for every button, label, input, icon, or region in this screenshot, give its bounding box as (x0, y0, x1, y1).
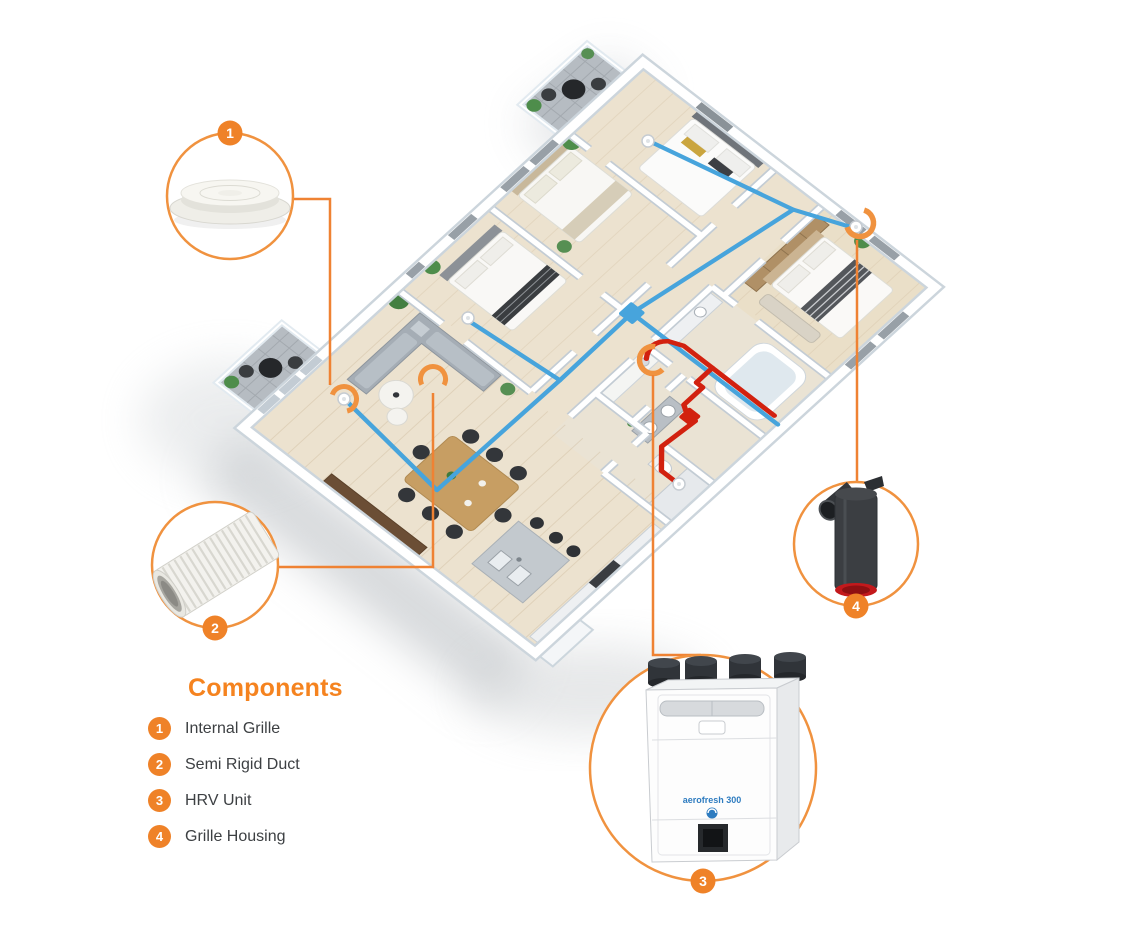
legend-title: Components (188, 674, 408, 703)
legend-badge-2: 2 (148, 753, 171, 776)
svg-text:4: 4 (852, 598, 860, 614)
hrv-brand-text: aerofresh 300 (683, 795, 742, 805)
badge-4: 4 (844, 594, 869, 619)
legend-item-grille-housing: 4 Grille Housing (148, 825, 408, 848)
legend-item-semi-rigid-duct: 2 Semi Rigid Duct (148, 753, 408, 776)
legend-item-hrv-unit: 3 HRV Unit (148, 789, 408, 812)
hrv-side-face (777, 678, 799, 860)
infographic-canvas: aerofresh 300 1 2 3 (0, 0, 1141, 928)
grille-dot (338, 393, 350, 405)
grille-dot (462, 312, 474, 324)
grille-dot (673, 478, 685, 490)
components-legend: Components 1 Internal Grille 2 Semi Rigi… (148, 674, 408, 861)
badge-1: 1 (218, 121, 243, 146)
legend-label: Internal Grille (185, 720, 280, 738)
legend-label: Semi Rigid Duct (185, 756, 300, 774)
legend-item-internal-grille: 1 Internal Grille (148, 717, 408, 740)
hrv-brand-logo (707, 808, 718, 819)
legend-label: HRV Unit (185, 792, 251, 810)
legend-label: Grille Housing (185, 828, 285, 846)
legend-badge-4: 4 (148, 825, 171, 848)
hrv-unit-illustration: aerofresh 300 (646, 652, 806, 862)
grille-dot (642, 135, 654, 147)
svg-text:1: 1 (226, 125, 234, 141)
svg-text:2: 2 (211, 620, 219, 636)
svg-text:3: 3 (699, 873, 707, 889)
internal-grille-illustration (170, 180, 290, 229)
badge-3: 3 (691, 869, 716, 894)
badge-2: 2 (203, 616, 228, 641)
legend-badge-1: 1 (148, 717, 171, 740)
legend-badge-3: 3 (148, 789, 171, 812)
